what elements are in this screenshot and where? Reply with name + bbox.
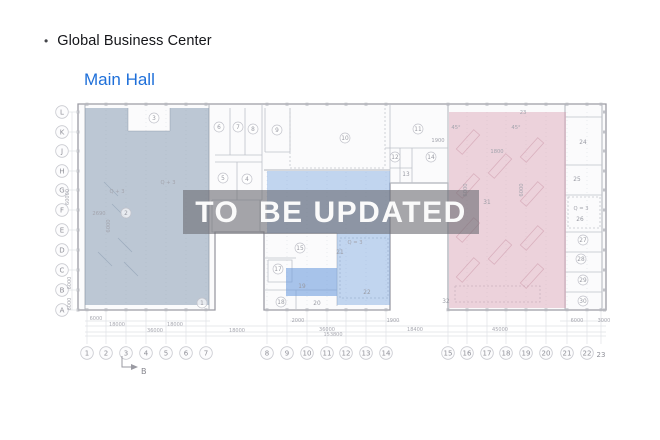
room-number: 19 [298, 284, 306, 290]
svg-text:20: 20 [542, 349, 551, 357]
svg-text:18: 18 [502, 349, 511, 357]
plan-annotation: Q + 3 [160, 180, 175, 186]
svg-text:18: 18 [277, 300, 285, 306]
svg-text:1: 1 [200, 301, 204, 307]
svg-text:8: 8 [265, 349, 269, 357]
svg-text:G: G [59, 186, 64, 194]
svg-text:10: 10 [303, 349, 312, 357]
room-number: 22 [363, 290, 371, 296]
dimension-label: 60000 [65, 189, 71, 205]
svg-text:7: 7 [236, 125, 240, 131]
grid-col-label: 17 [481, 347, 494, 360]
svg-text:21: 21 [563, 349, 572, 357]
svg-text:4: 4 [245, 177, 249, 183]
grid-col-label: 2 [100, 347, 113, 360]
dimension-label: 18000 [167, 322, 183, 328]
plan-annotation: 1900 [431, 138, 444, 144]
plan-annotation: 45° [511, 125, 521, 131]
svg-text:1: 1 [85, 349, 89, 357]
room-number: 7 [233, 122, 243, 132]
room-number: 6 [214, 122, 224, 132]
svg-text:13: 13 [402, 172, 410, 178]
grid-col-label: 8 [261, 347, 274, 360]
room-number: 13 [402, 172, 410, 178]
plan-annotation: 45° [451, 125, 461, 131]
floor-plan: LKJHGFEDCBA12345678910111213141516171819… [0, 0, 660, 440]
grid-col-label: 10 [301, 347, 314, 360]
svg-text:F: F [60, 206, 64, 214]
dimension-label: 153800 [323, 332, 342, 338]
grid-col-label: 19 [520, 347, 533, 360]
svg-text:31: 31 [483, 200, 491, 206]
svg-text:6: 6 [217, 125, 221, 131]
room-number: 5 [218, 173, 228, 183]
plan-annotation: 6000 [106, 219, 112, 232]
grid-col-label: 11 [321, 347, 334, 360]
svg-text:15: 15 [296, 246, 304, 252]
room-number: 12 [390, 152, 400, 162]
svg-text:J: J [60, 147, 63, 155]
grid-col-label: 13 [360, 347, 373, 360]
svg-text:17: 17 [274, 267, 282, 273]
dimension-label: 6000 [90, 316, 103, 322]
svg-text:13: 13 [362, 349, 371, 357]
dimension-label: 6000 [67, 298, 73, 311]
grid-col-label: 12 [340, 347, 353, 360]
dimension-label: 1900 [387, 318, 400, 324]
zone-middle-room19[interactable] [286, 268, 337, 296]
room-number: 31 [483, 200, 491, 206]
svg-text:D: D [59, 246, 64, 254]
grid-col-label: 15 [442, 347, 455, 360]
room-number: 25 [573, 177, 581, 183]
grid-col-label: 4 [140, 347, 153, 360]
svg-text:C: C [60, 266, 65, 274]
svg-text:14: 14 [427, 155, 435, 161]
grid-row-label: D [56, 244, 69, 257]
svg-text:10: 10 [341, 136, 349, 142]
plan-annotation: Q = 3 [347, 240, 362, 246]
grid-col-label: 7 [200, 347, 213, 360]
svg-text:6: 6 [184, 349, 189, 357]
dimension-label: 18400 [407, 327, 423, 333]
svg-text:11: 11 [323, 349, 332, 357]
dimension-label: 18000 [229, 328, 245, 334]
room-number: 30 [578, 296, 588, 306]
dimension-label: 2000 [292, 318, 305, 324]
dimension-label: 6000 [571, 318, 584, 324]
svg-text:21: 21 [336, 250, 344, 256]
grid-col-label: 6 [180, 347, 193, 360]
plan-annotation: 2690 [92, 211, 105, 217]
svg-text:E: E [60, 226, 64, 234]
svg-text:24: 24 [579, 140, 587, 146]
plan-annotation: Q + 3 [109, 189, 124, 195]
svg-text:2: 2 [104, 349, 108, 357]
svg-text:20: 20 [313, 301, 321, 307]
watermark-text: TO BE UPDATED [195, 196, 467, 229]
grid-col-label: 5 [160, 347, 173, 360]
plan-annotation: Q = 3 [573, 206, 588, 212]
grid-row-label: K [56, 126, 69, 139]
svg-text:27: 27 [579, 238, 587, 244]
svg-text:K: K [60, 128, 65, 136]
grid-col-label: 1 [81, 347, 94, 360]
room-number: 24 [579, 140, 587, 146]
svg-text:19: 19 [298, 284, 306, 290]
grid-col-label: 16 [461, 347, 474, 360]
svg-text:3: 3 [152, 116, 156, 122]
svg-text:29: 29 [579, 278, 587, 284]
grid-col-label: 20 [540, 347, 553, 360]
svg-text:26: 26 [576, 217, 584, 223]
svg-text:8: 8 [251, 127, 255, 133]
svg-text:L: L [60, 108, 64, 116]
room-number: 21 [336, 250, 344, 256]
dimension-label: 36000 [147, 328, 163, 334]
room-number: 15 [295, 243, 305, 253]
dimension-label: 45000 [492, 327, 508, 333]
grid-row-label: J [56, 145, 69, 158]
section-arrow-label: B [141, 367, 147, 376]
grid-col-label: 18 [500, 347, 513, 360]
plan-annotation: 23 [520, 110, 527, 116]
room-number: 8 [248, 124, 258, 134]
plan-annotation: 6000 [519, 183, 525, 196]
grid-col-label: 14 [380, 347, 393, 360]
room-number: 26 [576, 217, 584, 223]
plan-annotation: 1800 [490, 149, 503, 155]
dimension-label: 6000 [67, 277, 73, 290]
svg-text:12: 12 [391, 155, 399, 161]
svg-text:30: 30 [579, 299, 587, 305]
room-number: 18 [276, 297, 286, 307]
grid-row-label: E [56, 224, 69, 237]
svg-text:32: 32 [442, 299, 450, 305]
svg-text:H: H [59, 167, 64, 175]
room-number: 4 [242, 174, 252, 184]
svg-text:4: 4 [144, 349, 149, 357]
svg-text:16: 16 [463, 349, 472, 357]
room-number: 1 [197, 298, 207, 308]
svg-text:12: 12 [342, 349, 351, 357]
room-number: 10 [340, 133, 350, 143]
svg-text:28: 28 [577, 257, 585, 263]
svg-text:A: A [60, 306, 65, 314]
svg-text:B: B [60, 286, 65, 294]
grid-row-label: C [56, 264, 69, 277]
svg-text:2: 2 [124, 211, 128, 217]
svg-text:5: 5 [221, 176, 225, 182]
svg-text:3: 3 [124, 349, 128, 357]
svg-text:7: 7 [204, 349, 208, 357]
room-number: 11 [413, 124, 423, 134]
room-number: 27 [578, 235, 588, 245]
svg-text:25: 25 [573, 177, 581, 183]
room-number: 28 [576, 254, 586, 264]
svg-text:22: 22 [583, 349, 592, 357]
dimension-label: 3000 [598, 318, 611, 324]
svg-text:23: 23 [597, 351, 606, 359]
room-number: 29 [578, 275, 588, 285]
svg-text:22: 22 [363, 290, 371, 296]
watermark: TO BE UPDATED [183, 190, 479, 234]
svg-text:5: 5 [164, 349, 168, 357]
room-number: 32 [442, 299, 450, 305]
room-number: 17 [273, 264, 283, 274]
svg-text:9: 9 [285, 349, 289, 357]
grid-col-label: 21 [561, 347, 574, 360]
grid-col-label: 9 [281, 347, 294, 360]
svg-text:15: 15 [444, 349, 453, 357]
room-number: 3 [149, 113, 159, 123]
room-number: 14 [426, 152, 436, 162]
grid-row-label: L [56, 106, 69, 119]
svg-text:19: 19 [522, 349, 531, 357]
grid-col-label: 22 [581, 347, 594, 360]
room-number: 9 [272, 125, 282, 135]
room-number: 2 [121, 208, 131, 218]
grid-col-label: 23 [597, 351, 606, 359]
room-number: 20 [313, 301, 321, 307]
svg-text:17: 17 [483, 349, 492, 357]
svg-text:9: 9 [275, 128, 279, 134]
dimension-label: 18000 [109, 322, 125, 328]
svg-text:14: 14 [382, 349, 391, 357]
grid-row-label: H [56, 165, 69, 178]
svg-text:11: 11 [414, 127, 422, 133]
